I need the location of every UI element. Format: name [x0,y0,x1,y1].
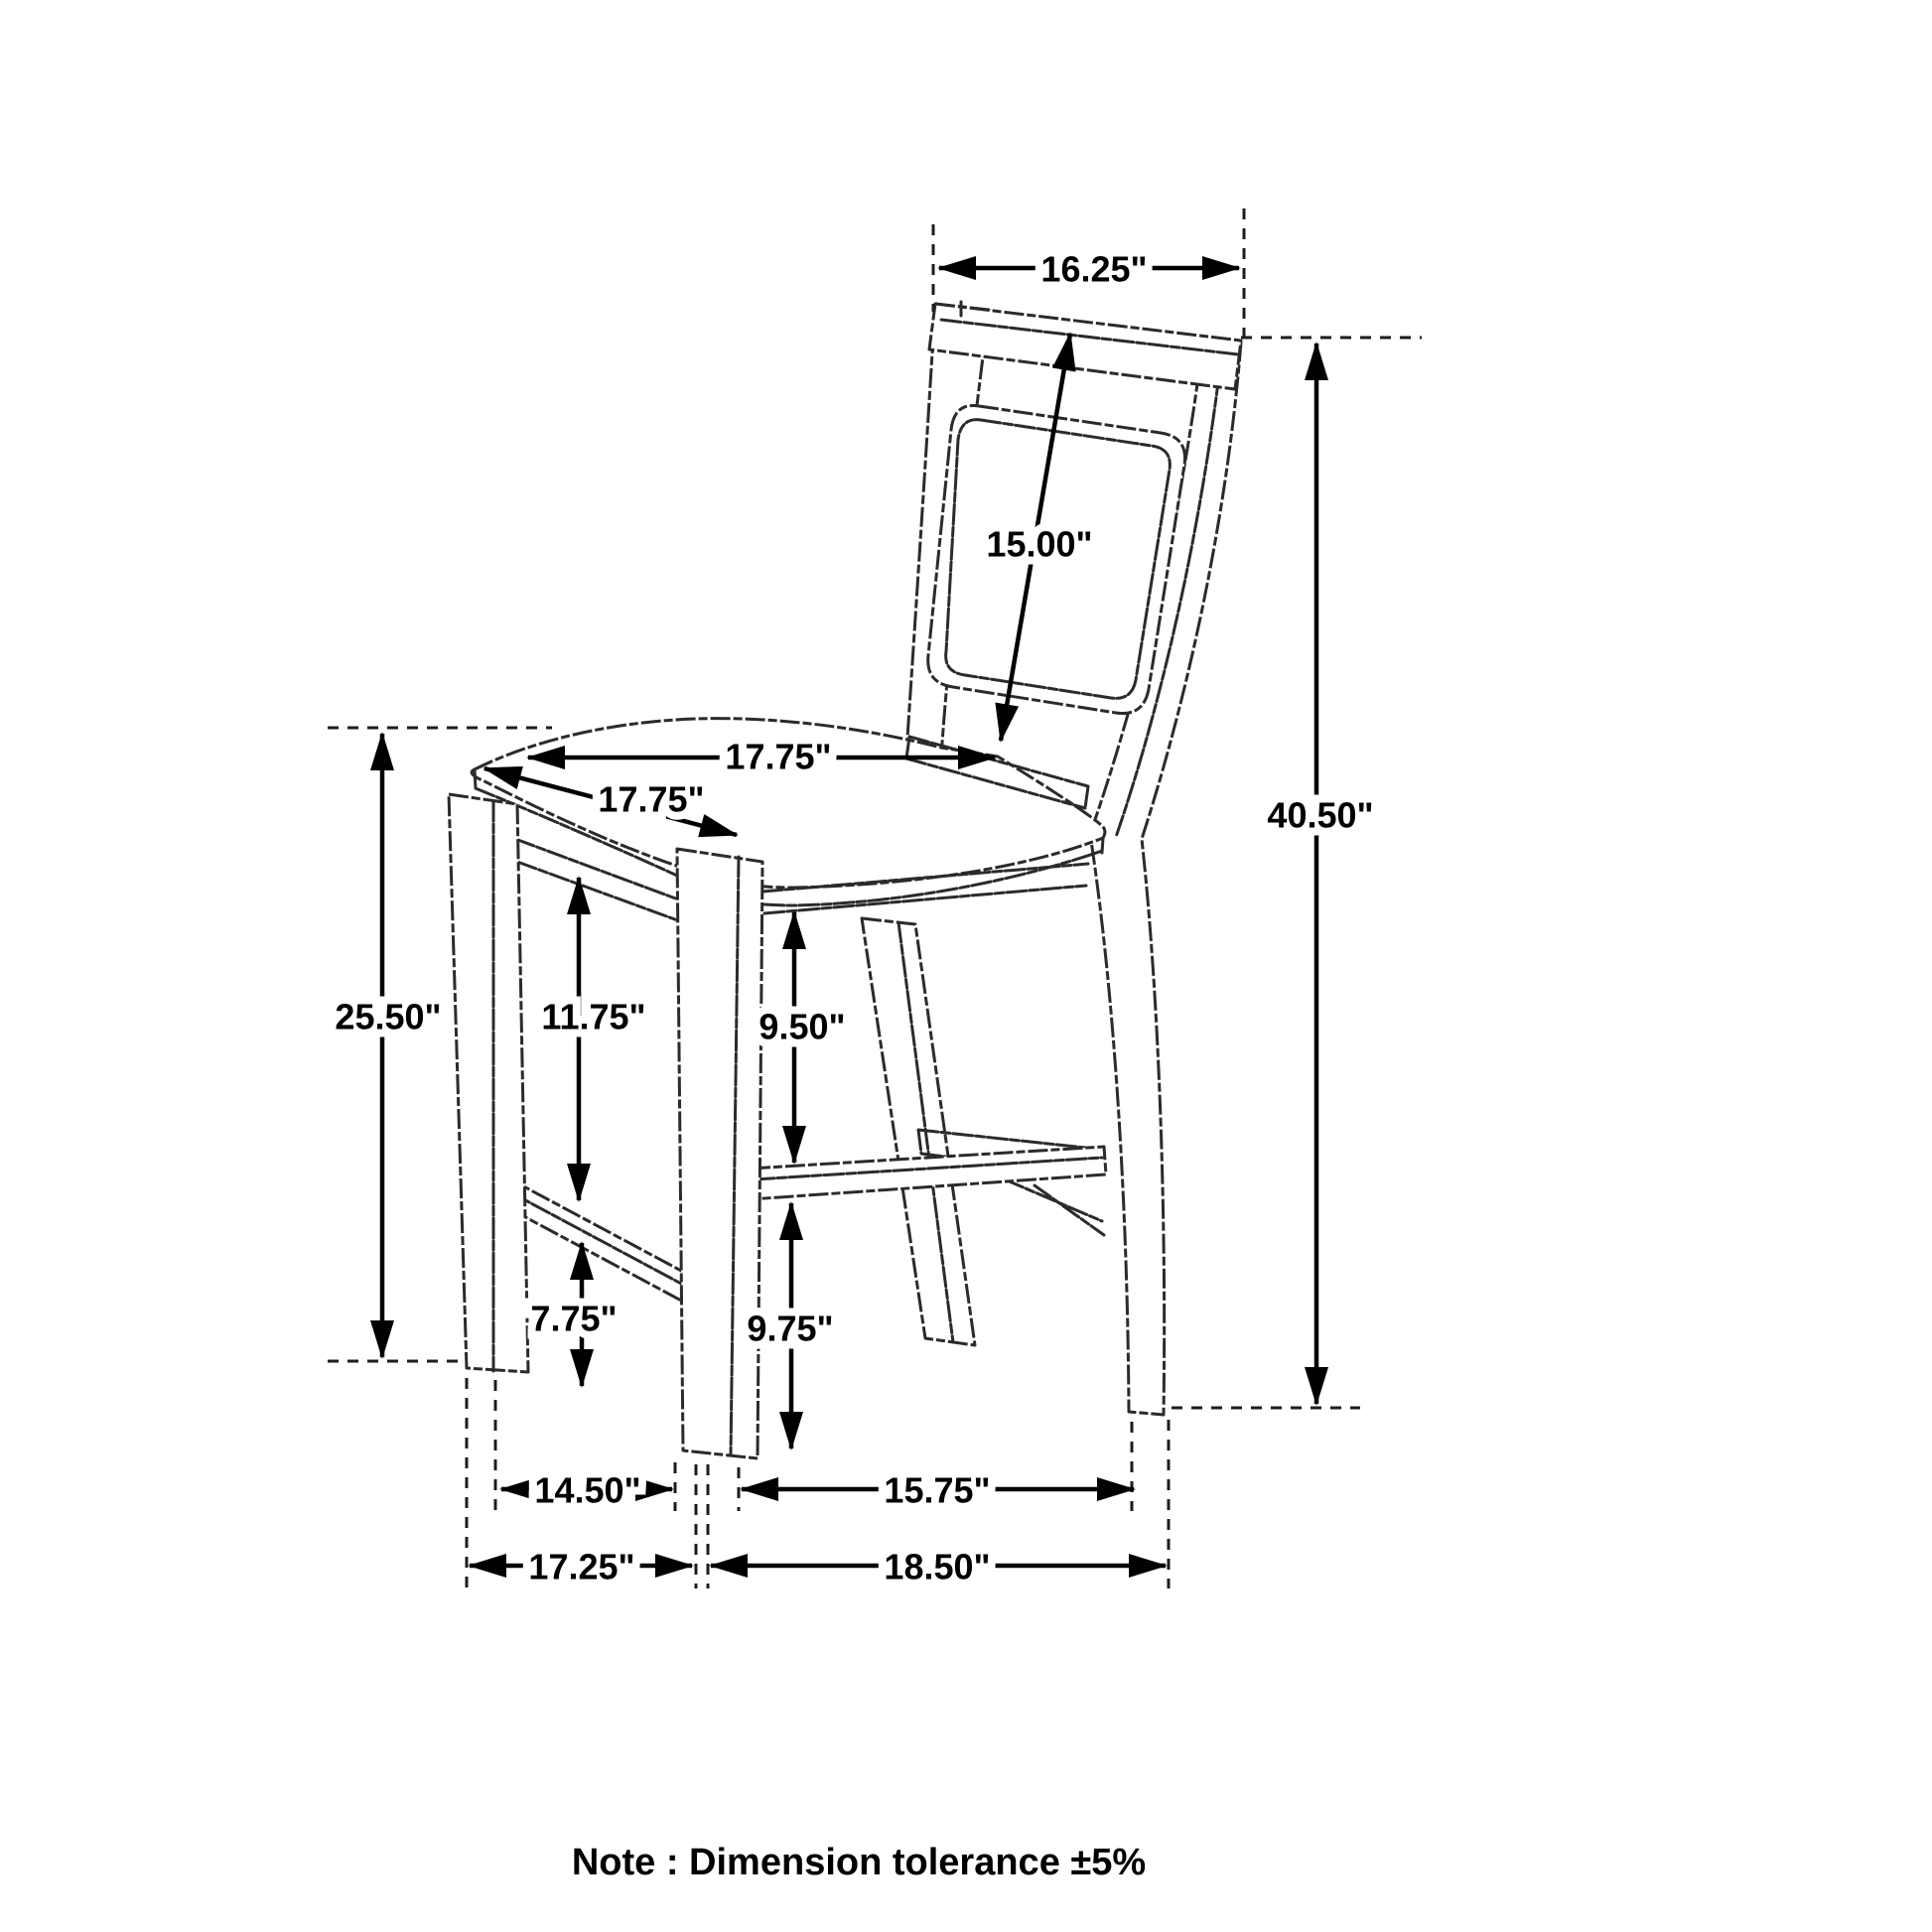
dim-label-side-leg-spacing: 15.75" [884,1470,990,1511]
chair-front-left-leg [449,794,528,1372]
chair-dimension-diagram: 16.25" 15.00" 40.50" 17.75" 17.75" 25.50… [0,0,1932,1932]
chair-drawing [449,302,1241,1458]
dimension-diagram-page: 16.25" 15.00" 40.50" 17.75" 17.75" 25.50… [0,0,1932,1932]
dim-label-seat-to-front-stretcher: 11.75" [541,997,645,1037]
dim-label-back-width: 16.25" [1040,249,1147,290]
chair-front-stretcher [501,1174,685,1303]
chair-front-right-leg [677,849,762,1458]
dim-label-seat-depth: 17.75" [598,779,704,820]
dim-label-base-side-depth: 18.50" [884,1547,990,1587]
dim-label-front-stretcher-to-floor: 7.75" [530,1299,617,1339]
dim-label-seat-height: 25.50" [335,997,441,1037]
dim-label-seat-width: 17.75" [725,737,831,777]
dim-label-side-stretcher-to-floor: 9.75" [747,1309,833,1349]
dim-label-front-leg-spacing: 14.50" [534,1470,640,1511]
tolerance-note: Note : Dimension tolerance ±5% [572,1842,1146,1883]
dim-label-seat-to-side-stretcher: 9.50" [759,1007,845,1047]
dim-label-base-front-width: 17.25" [528,1547,634,1587]
dim-label-back-panel-height: 15.00" [986,524,1092,565]
dim-label-overall-height: 40.50" [1267,795,1373,836]
